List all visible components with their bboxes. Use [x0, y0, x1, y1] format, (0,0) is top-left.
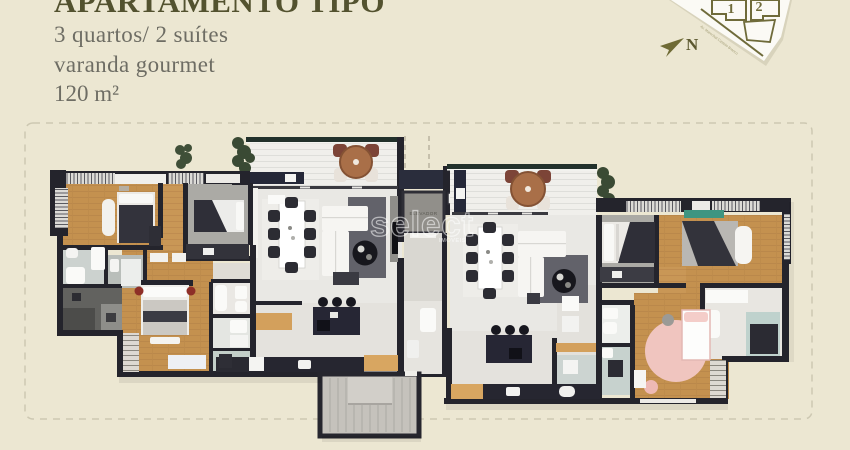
svg-text:varanda gourmet: varanda gourmet	[54, 52, 215, 77]
svg-text:3 quartos/ 2 suítes: 3 quartos/ 2 suítes	[54, 22, 228, 47]
svg-text:IMÓVEIS: IMÓVEIS	[439, 236, 466, 244]
svg-text:1: 1	[728, 2, 735, 17]
svg-text:N: N	[686, 35, 699, 54]
svg-text:120 m²: 120 m²	[54, 81, 119, 106]
svg-text:APARTAMENTO TIPO: APARTAMENTO TIPO	[54, 0, 385, 19]
svg-text:2: 2	[756, 0, 763, 15]
